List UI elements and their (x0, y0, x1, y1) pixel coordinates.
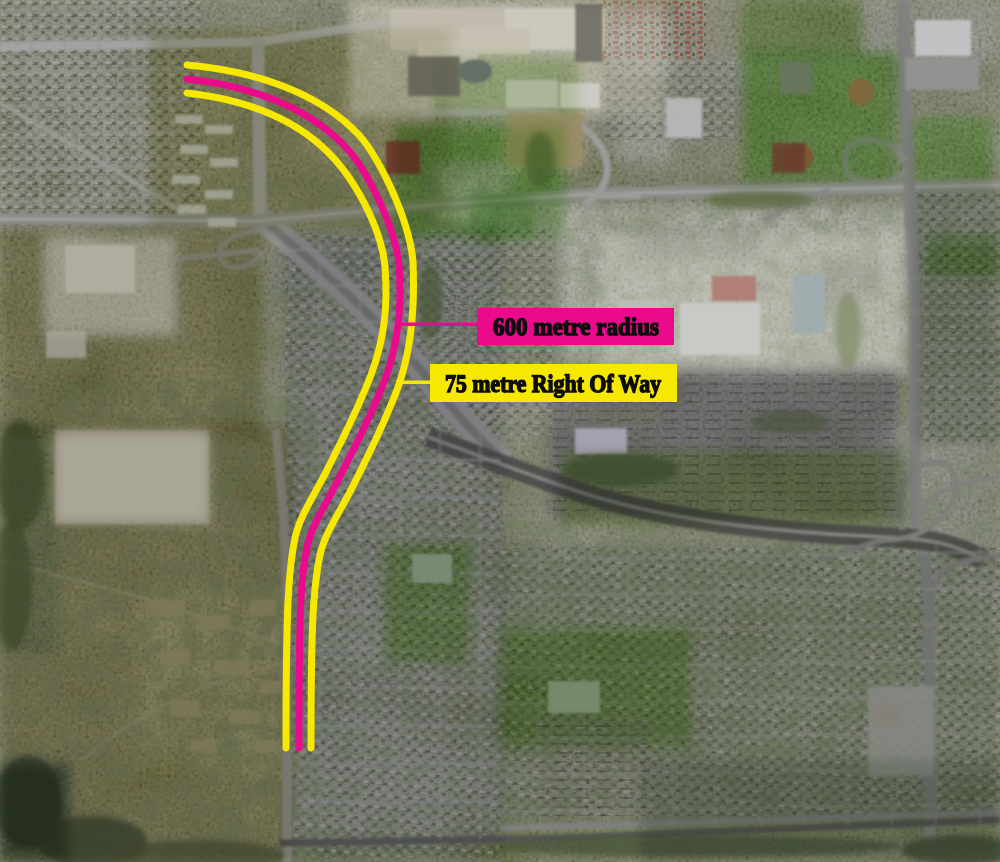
svg-text:600 metre radius: 600 metre radius (493, 314, 659, 341)
svg-text:75 metre Right Of Way: 75 metre Right Of Way (445, 371, 661, 398)
